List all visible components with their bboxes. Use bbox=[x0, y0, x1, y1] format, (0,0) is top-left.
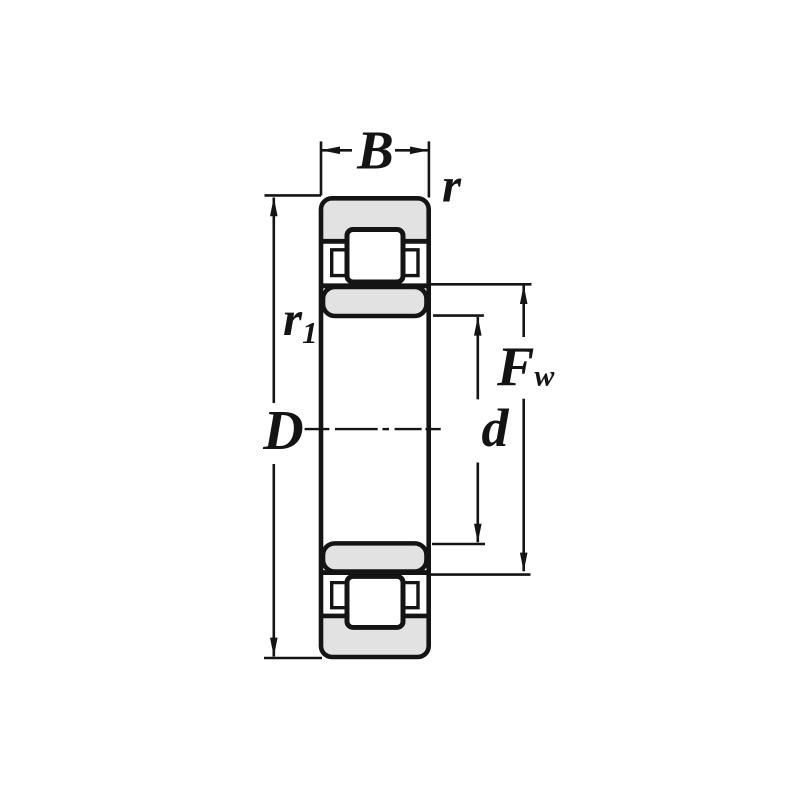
svg-text:r: r bbox=[442, 158, 462, 213]
svg-text:D: D bbox=[262, 400, 303, 462]
svg-text:d: d bbox=[482, 398, 510, 458]
svg-text:B: B bbox=[356, 120, 394, 181]
